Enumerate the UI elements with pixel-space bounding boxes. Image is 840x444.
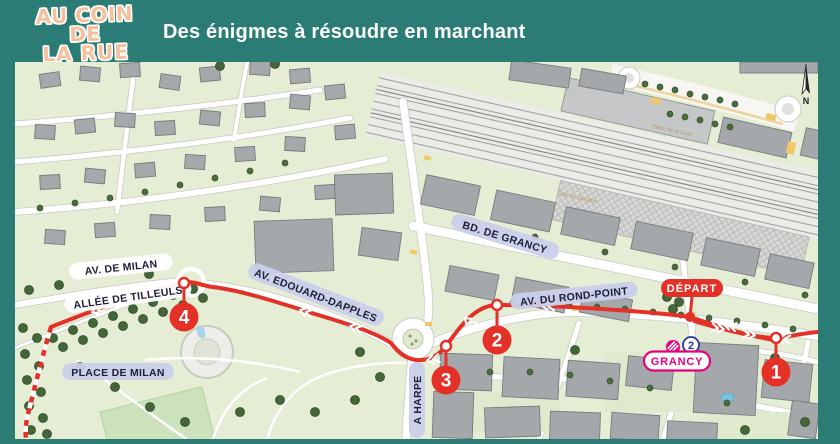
marker-2: 2: [483, 326, 512, 355]
marker-1: 1: [762, 358, 791, 387]
svg-text:4: 4: [179, 308, 190, 329]
page: AU COIN DE LA RUE Des énigmes à résoudre…: [0, 0, 840, 439]
depart-badge: DÉPART: [661, 279, 723, 297]
svg-text:3: 3: [441, 371, 452, 392]
au-coin-de-la-rue-logo: AU COIN DE LA RUE: [17, 4, 153, 66]
svg-text:2: 2: [688, 340, 694, 352]
waypoint-2: [492, 300, 502, 310]
depart-dot: [685, 312, 695, 322]
header-bar: AU COIN DE LA RUE Des énigmes à résoudre…: [0, 0, 840, 62]
svg-text:2: 2: [492, 331, 503, 352]
waypoint-1: [771, 333, 781, 343]
svg-text:DÉPART: DÉPART: [667, 282, 717, 295]
marker-4: 4: [170, 303, 199, 332]
svg-text:N: N: [803, 96, 810, 106]
svg-text:A HARPE: A HARPE: [412, 376, 424, 425]
waypoint-3: [441, 341, 451, 351]
logo-line-1: AU COIN DE: [17, 4, 152, 47]
street-label-place-de-milan: PLACE DE MILAN: [62, 363, 174, 380]
street-label-av-de-la-harpe: A HARPE: [409, 362, 425, 438]
map-canvas: Rue du Simplon Place de la Gare AV. DE M: [15, 62, 818, 439]
waypoint-4: [179, 278, 189, 288]
grancy-station-badge: GRANCY: [644, 352, 710, 371]
route-map: Rue du Simplon Place de la Gare AV. DE M: [15, 62, 818, 439]
marker-3: 3: [432, 366, 461, 395]
svg-text:PLACE DE MILAN: PLACE DE MILAN: [71, 367, 164, 379]
svg-text:1: 1: [771, 363, 782, 384]
page-title: Des énigmes à résoudre en marchant: [163, 21, 526, 44]
svg-text:GRANCY: GRANCY: [651, 356, 703, 368]
